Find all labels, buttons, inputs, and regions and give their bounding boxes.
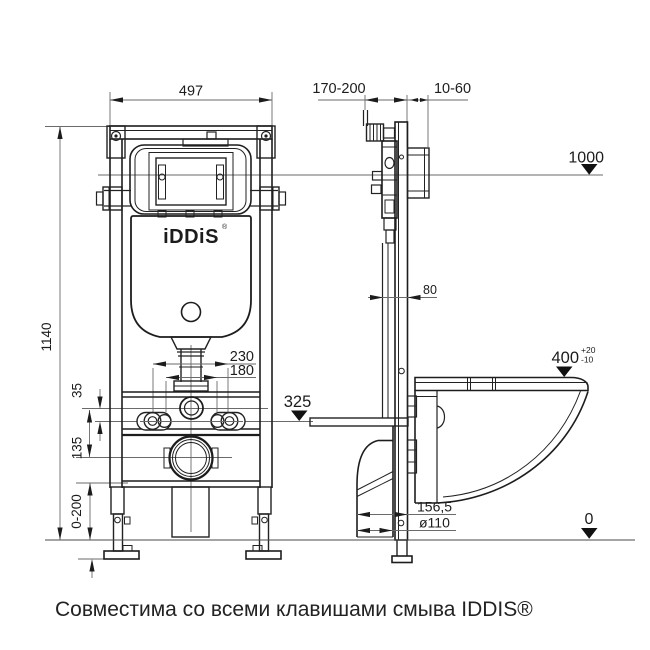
dim-level-floor: 0	[585, 511, 594, 528]
dim-profile-depth: 80	[423, 283, 437, 297]
flush-button	[182, 303, 201, 322]
water-inlet	[364, 110, 395, 141]
side-view	[310, 110, 588, 563]
brand-logo: iDDiS	[163, 226, 219, 248]
dim-outlet-offset: 156,5	[417, 499, 452, 515]
right-foot	[246, 551, 281, 559]
drawing-canvas: iDDiS ®	[0, 0, 650, 650]
dim-seat-height: 400	[551, 349, 579, 367]
dim-bracket-range: 10-60	[434, 81, 471, 97]
dim-seat-tol-minus: -10	[581, 355, 594, 365]
dim-offset-flush: 35	[70, 383, 85, 398]
front-lower-frame	[104, 481, 281, 559]
dim-outlet-diameter: ø110	[419, 515, 450, 531]
installation-drawing: iDDiS ®	[0, 0, 650, 650]
construction-lines	[45, 92, 603, 559]
dim-leg-range: 0-200	[69, 494, 84, 529]
dim-level-top: 1000	[568, 150, 604, 167]
dim-seat-tol-plus: +20	[581, 345, 596, 355]
toilet-bowl	[408, 378, 589, 504]
brand-mark: ®	[222, 223, 228, 231]
dim-frame-height: 1140	[39, 322, 54, 351]
left-foot	[104, 551, 139, 559]
dim-level-bolts: 325	[284, 393, 312, 411]
flush-bend	[310, 243, 408, 426]
support-shelf	[310, 418, 408, 426]
side-foot	[392, 556, 412, 563]
cistern-front: iDDiS ®	[131, 216, 251, 337]
side-rail	[392, 122, 412, 563]
dim-bolt-inner: 180	[230, 363, 254, 379]
dim-frame-width: 497	[179, 84, 203, 100]
cistern-side	[372, 141, 398, 243]
caption: Совместима со всеми клавишами смыва IDDI…	[55, 598, 533, 621]
drain-elbow	[357, 426, 393, 537]
wall-bracket	[408, 148, 430, 198]
dim-offset-drain: 135	[70, 437, 85, 460]
dim-depth-range: 170-200	[312, 81, 365, 97]
